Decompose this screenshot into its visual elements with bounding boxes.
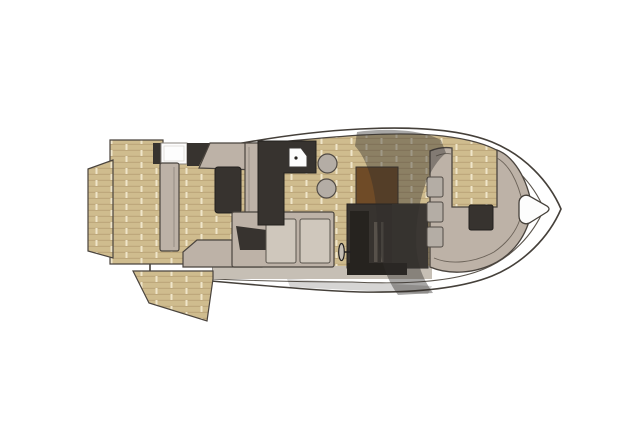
bow-table [469,205,493,230]
bar-stool-1 [318,154,337,173]
yacht-floorplan [0,0,637,425]
lounge-dark-pad [215,167,241,213]
steering-wheel [339,244,345,261]
settee-corner-pad [236,226,267,250]
lounge-left-arm [160,163,179,251]
sink-faucet-dot [294,156,297,159]
bow-backrest-cushion-2 [427,202,443,222]
helm-seat-block [350,211,369,267]
beach-platform-flap [133,271,213,321]
bow-backrest-cushion-1 [427,177,443,197]
settee-cushion-right [300,219,330,263]
bar-stool-2 [317,179,336,198]
yacht-floorplan-canvas [0,0,637,425]
bow-backrest-cushion-3 [427,227,443,247]
console-slit-1 [374,222,378,262]
settee-cushion-left [266,219,296,263]
swim-platform [88,160,113,258]
